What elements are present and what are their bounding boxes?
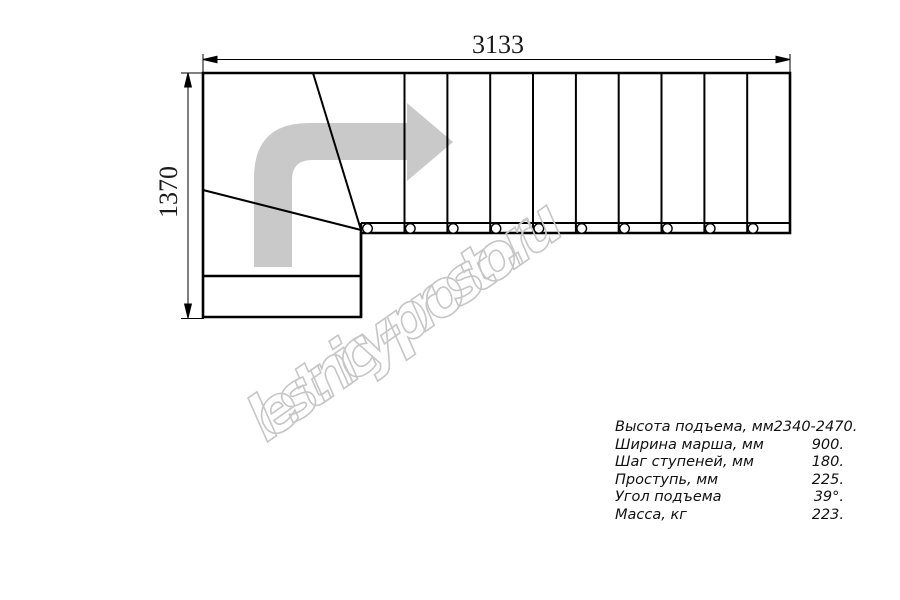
spec-value: 223. xyxy=(812,507,844,525)
spec-value: 225. xyxy=(812,472,844,490)
bolt-circle xyxy=(577,224,587,234)
spec-value: 2340-2470. xyxy=(774,419,858,437)
bolt-circle xyxy=(620,224,630,234)
left-dimension xyxy=(181,73,204,319)
dimension-width-label: 3133 xyxy=(472,30,524,59)
bolt-circle xyxy=(748,224,758,234)
spec-row-width: Ширина марша, мм 900. xyxy=(615,437,844,455)
spec-value: 900. xyxy=(812,437,844,455)
spec-row-tread: Проступь, мм 225. xyxy=(615,472,844,490)
spec-row-step: Шаг ступеней, мм 180. xyxy=(615,454,844,472)
spec-label: Высота подъема, мм xyxy=(615,419,774,437)
dimension-height-label: 1370 xyxy=(154,166,183,218)
dimension-arrow-icon xyxy=(185,304,192,318)
spec-row-angle: Угол подъема 39°. xyxy=(615,489,844,507)
turn-direction-arrow-icon xyxy=(254,103,453,267)
dimension-arrow-icon xyxy=(185,73,192,87)
bolt-circle xyxy=(448,224,458,234)
dimension-arrow-icon xyxy=(203,56,217,63)
spec-value: 180. xyxy=(812,454,844,472)
spec-label: Масса, кг xyxy=(615,507,687,525)
spec-label: Проступь, мм xyxy=(615,472,718,490)
spec-label: Угол подъема xyxy=(615,489,722,507)
dimension-arrow-icon xyxy=(776,56,790,63)
bolt-circle xyxy=(363,224,373,234)
spec-row-mass: Масса, кг 223. xyxy=(615,507,844,525)
bolt-circle xyxy=(406,224,416,234)
spec-value: 39°. xyxy=(814,489,844,507)
spec-row-height: Высота подъема, мм 2340-2470. xyxy=(615,419,844,437)
spec-label: Ширина марша, мм xyxy=(615,437,764,455)
bolt-circle xyxy=(705,224,715,234)
staircase-drawing-page: 3133 1370 lestnicy-prosto.ru Высота подъ… xyxy=(0,0,900,600)
step-divider-lines xyxy=(405,73,748,233)
spec-label: Шаг ступеней, мм xyxy=(615,454,754,472)
specifications-table: Высота подъема, мм 2340-2470. Ширина мар… xyxy=(615,419,844,524)
bolt-circle xyxy=(663,224,673,234)
